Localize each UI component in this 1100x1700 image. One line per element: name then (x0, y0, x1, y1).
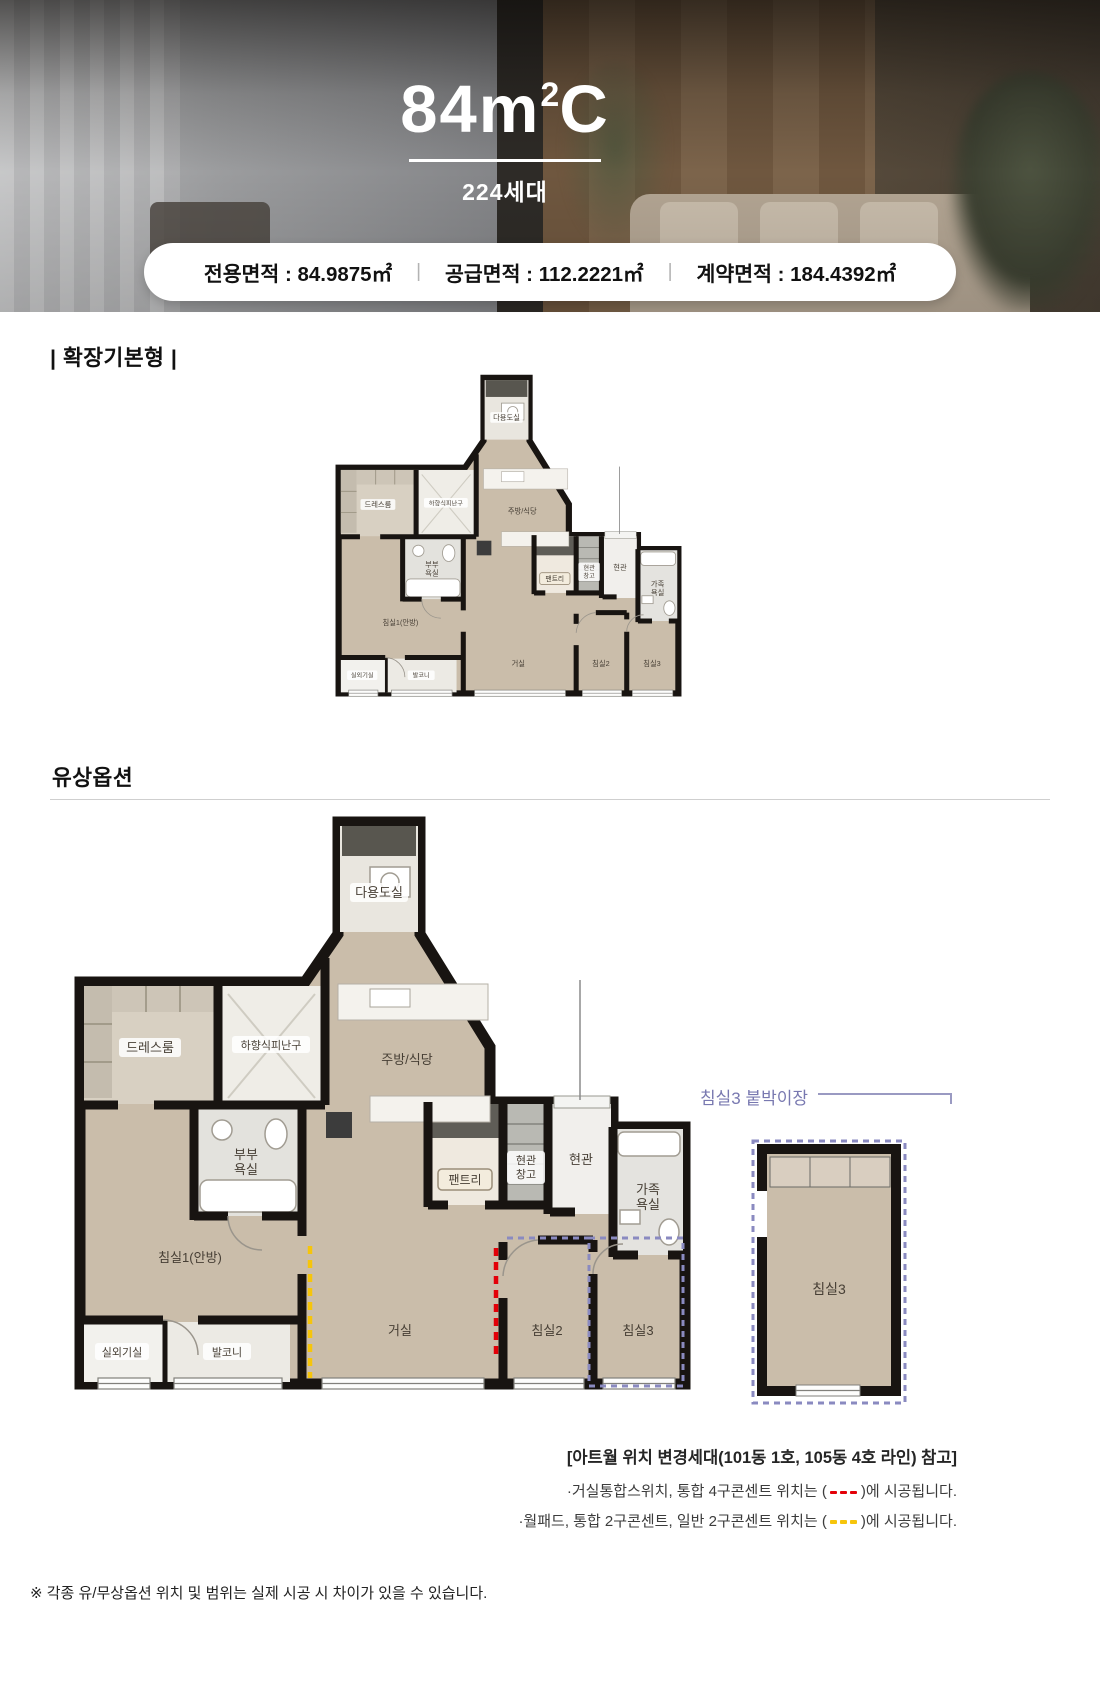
notes-line1-suffix: )에 시공됩니다. (861, 1483, 957, 1500)
disclaimer-note: ※ 각종 유/무상옵션 위치 및 범위는 실제 시공 시 차이가 있을 수 있습… (30, 1582, 487, 1603)
red-dashes-icon (829, 1477, 859, 1504)
mini-room-label: 침실3 (812, 1281, 846, 1297)
area-exclusive: 전용면적 : 84.9875㎡ (204, 257, 392, 287)
notes-line-2: ·월패드, 통합 2구콘센트, 일반 2구콘센트 위치는 ()에 시공됩니다. (518, 1507, 957, 1537)
pill-divider: | (668, 261, 673, 283)
section-title-paid-option: 유상옵션 (52, 761, 133, 792)
notes-heading: [아트월 위치 변경세대(101동 1호, 105동 4호 라인) 참고] (518, 1444, 957, 1468)
floorplan-paid-option (70, 812, 695, 1397)
unit-type-main: 84m (400, 72, 540, 147)
bedroom3-wardrobe-diagram: 침실3 붙박이장 침실3 (700, 1084, 952, 1409)
bracket-line (818, 1093, 952, 1104)
unit-count: 224세대 (0, 173, 1055, 207)
section-title-extended-base: | 확장기본형 | (50, 341, 177, 372)
bedroom3-wardrobe-label: 침실3 붙박이장 (700, 1084, 808, 1109)
notes-line1-prefix: ·거실통합스위치, 통합 4구콘센트 위치는 ( (567, 1483, 827, 1500)
unit-type-sup: 2 (540, 76, 559, 114)
unit-type-title: 84m2C 224세대 (0, 76, 1055, 207)
built-in-wardrobe (770, 1157, 890, 1187)
floorplan-extended-base (333, 372, 684, 701)
option-notes: [아트월 위치 변경세대(101동 1호, 105동 4호 라인) 참고] ·거… (518, 1444, 957, 1536)
pill-divider: | (416, 261, 421, 283)
notes-line2-prefix: ·월패드, 통합 2구콘센트, 일반 2구콘센트 위치는 ( (518, 1513, 826, 1530)
notes-line2-suffix: )에 시공됩니다. (861, 1513, 957, 1530)
area-supply: 공급면적 : 112.2221㎡ (445, 257, 644, 287)
section-underline (50, 799, 1050, 800)
mini-door-gap (757, 1191, 767, 1237)
unit-type-suffix: C (559, 72, 609, 147)
yellow-dashes-icon (829, 1507, 859, 1534)
notes-line-1: ·거실통합스위치, 통합 4구콘센트 위치는 ()에 시공됩니다. (518, 1477, 957, 1507)
area-info-pill: 전용면적 : 84.9875㎡ | 공급면적 : 112.2221㎡ | 계약면… (144, 243, 956, 301)
area-contract: 계약면적 : 184.4392㎡ (697, 257, 897, 287)
title-divider (409, 159, 601, 162)
bedroom3-wardrobe-label-row: 침실3 붙박이장 (700, 1084, 952, 1109)
bedroom3-mini-plan: 침실3 (700, 1139, 950, 1409)
